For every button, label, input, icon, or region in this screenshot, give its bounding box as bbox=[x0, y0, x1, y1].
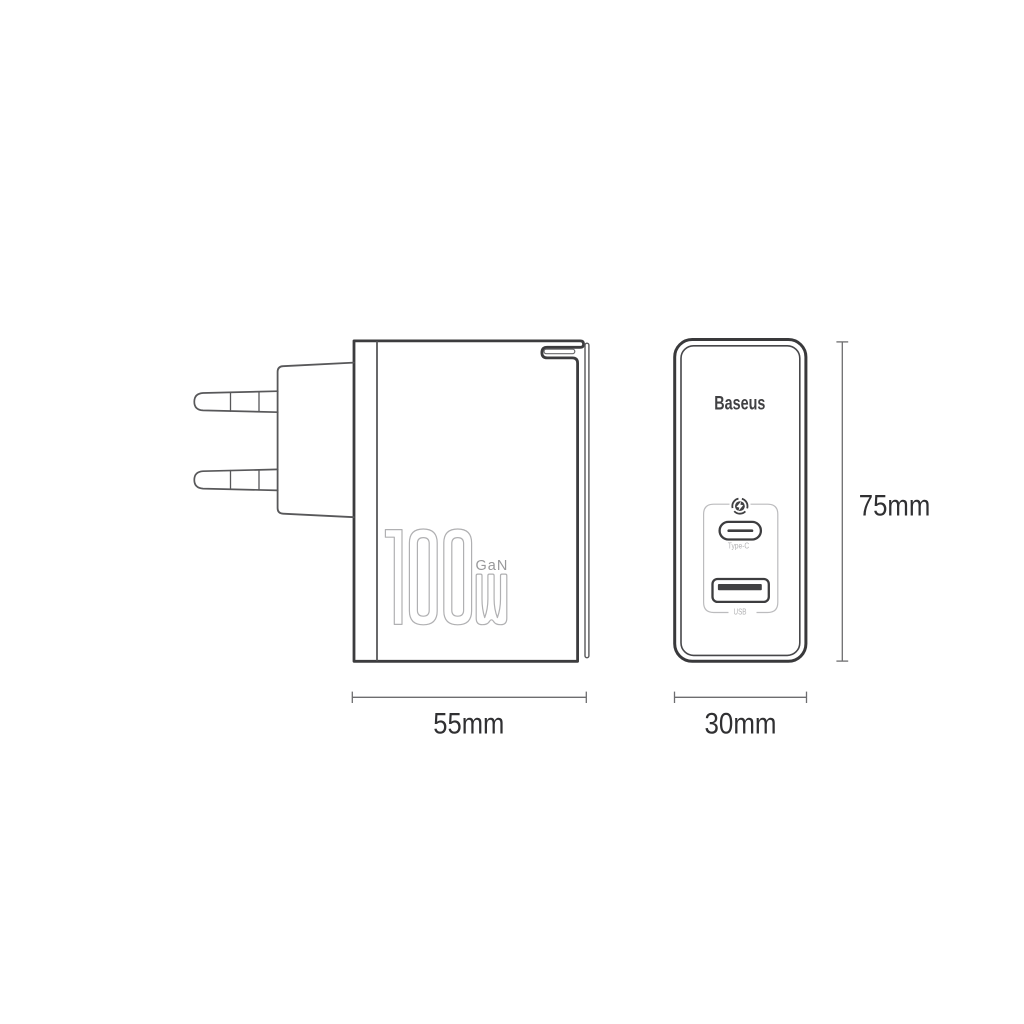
svg-text:30mm: 30mm bbox=[705, 708, 777, 741]
svg-text:Baseus: Baseus bbox=[714, 392, 765, 414]
svg-text:55mm: 55mm bbox=[433, 708, 504, 741]
svg-text:GaN: GaN bbox=[476, 558, 509, 574]
svg-text:USB: USB bbox=[734, 607, 747, 616]
svg-text:75mm: 75mm bbox=[859, 490, 931, 523]
svg-text:Type-C: Type-C bbox=[728, 542, 750, 551]
